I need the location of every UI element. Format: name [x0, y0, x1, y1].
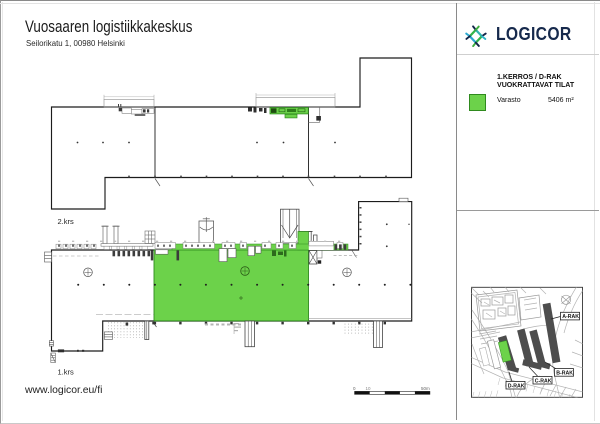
svg-text:B-RAK: B-RAK: [556, 371, 573, 377]
svg-text:1.krs: 1.krs: [58, 368, 75, 377]
svg-text:D-RAK: D-RAK: [508, 383, 525, 389]
svg-text:0: 0: [353, 386, 356, 391]
svg-text:A-RAK: A-RAK: [562, 314, 579, 320]
svg-text:10: 10: [366, 386, 372, 391]
svg-text:50m: 50m: [421, 386, 430, 391]
svg-text:2.krs: 2.krs: [58, 217, 75, 226]
svg-text:C-RAK: C-RAK: [535, 378, 552, 384]
